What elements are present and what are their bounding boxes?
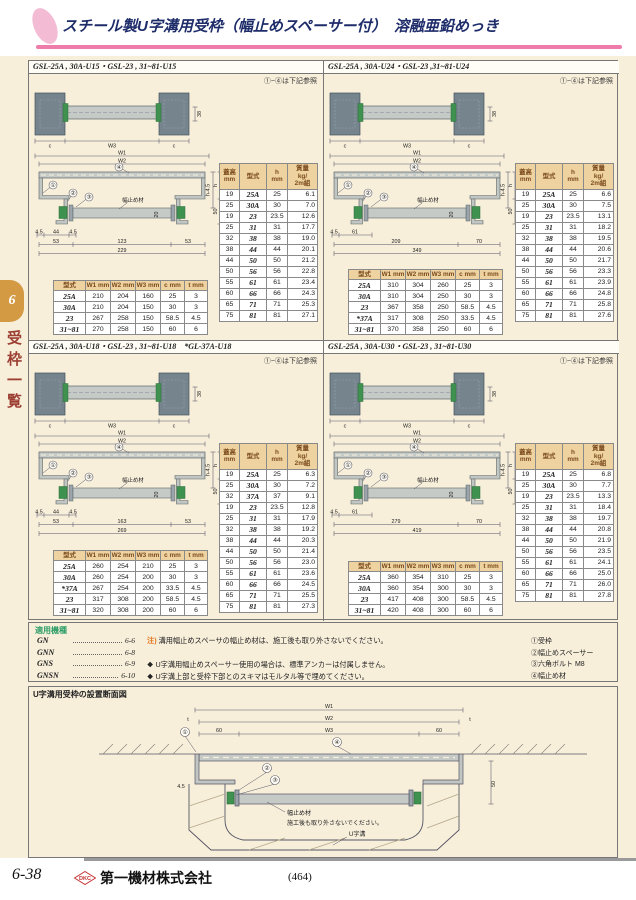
- svg-text:4.5: 4.5: [35, 510, 43, 516]
- table-cell: 56: [240, 266, 267, 277]
- height-weight-table: 蓋高mm型式hmm質量kg/2m組1925A256.12530A307.0192…: [219, 163, 318, 322]
- table-row: 38444420.3: [220, 535, 318, 546]
- table-cell: 31: [267, 222, 288, 233]
- table-cell: 320: [86, 605, 111, 616]
- column-header: c mm: [456, 561, 480, 572]
- svg-text:h: h: [508, 464, 514, 467]
- note-line: 注) 溝用幅止めスペーサの幅止め材は、施工後も取り外さないでください。: [147, 636, 388, 646]
- table-cell: 81: [563, 310, 584, 321]
- svg-text:c: c: [344, 144, 347, 150]
- svg-text:c: c: [173, 424, 176, 430]
- table-cell: 360: [381, 583, 406, 594]
- table-cell: 31: [536, 222, 563, 233]
- dotted-leader: [73, 665, 122, 666]
- spec-panel-grid: GSL-25A , 30A-U15・GSL-23 , 31~81-U15 ①~④…: [28, 60, 618, 620]
- table-cell: 270: [86, 324, 111, 335]
- table-cell: 71: [563, 579, 584, 590]
- svg-text:②: ②: [365, 190, 370, 197]
- table-cell: 71: [240, 590, 267, 601]
- table-cell: 31: [267, 513, 288, 524]
- table-cell: 44: [220, 546, 240, 557]
- table-cell: 308: [406, 313, 431, 324]
- table-cell: 19.0: [288, 233, 318, 244]
- column-header: c mm: [456, 269, 480, 280]
- column-header: t mm: [480, 269, 503, 280]
- panel-title: GSL-25A , 30A-U30・GSL-23 , 31~81-U30: [324, 341, 619, 354]
- company-name: 第一機材株式会社: [100, 868, 212, 888]
- table-cell: 250: [431, 324, 456, 335]
- logo-text: DKC: [79, 876, 91, 882]
- table-cell: 3: [480, 572, 503, 583]
- list-item: GNSN 6-10: [37, 671, 135, 683]
- table-cell: 310: [381, 280, 406, 291]
- table-cell: 3: [480, 583, 503, 594]
- table-cell: 260: [86, 572, 111, 583]
- dotted-leader: [73, 642, 122, 643]
- table-cell: 30A: [536, 200, 563, 211]
- svg-text:349: 349: [413, 248, 422, 254]
- table-cell: 50: [240, 546, 267, 557]
- table-cell: 20.6: [584, 244, 614, 255]
- title-underline: [36, 45, 622, 49]
- table-cell: 71: [536, 299, 563, 310]
- spacer-end-left: [235, 790, 239, 806]
- svg-text:h-4.5: h-4.5: [501, 184, 507, 196]
- column-header: 型式: [536, 444, 563, 470]
- table-cell: 250: [431, 302, 456, 313]
- panel-title: GSL-25A , 30A-U18・GSL-23 , 31~81-U18 *GL…: [29, 341, 323, 354]
- svg-text:163: 163: [118, 519, 127, 525]
- svg-text:53: 53: [185, 239, 191, 245]
- column-header: W3 mm: [431, 561, 456, 572]
- table-cell: 24.8: [584, 288, 614, 299]
- column-header: hmm: [563, 164, 584, 190]
- table-cell: 25: [456, 280, 480, 291]
- installation-section-box: U字溝用受枠の設置断面図 W1 W2 t t 60 W3 60 50 4.5 2…: [28, 686, 618, 858]
- svg-text:50: 50: [508, 209, 514, 215]
- svg-text:②: ②: [70, 190, 75, 197]
- table-row: 3237A379.1: [220, 491, 318, 502]
- table-cell: 260: [86, 561, 111, 572]
- table-cell: 19: [220, 502, 240, 513]
- header-row: 蓋高mm型式hmm質量kg/2m組: [220, 444, 318, 470]
- table-cell: 61: [267, 568, 288, 579]
- table-row: 60666624.8: [516, 288, 614, 299]
- dimension-table: 型式W1 mmW2 mmW3 mmc mmt mm25A260254210253…: [53, 550, 208, 617]
- svg-text:④: ④: [411, 444, 416, 451]
- table-row: 65717125.8: [516, 299, 614, 310]
- height-weight-table: 蓋高mm型式hmm質量kg/2m組1925A256.62530A307.5192…: [515, 163, 614, 322]
- dim-60-left: 60: [216, 728, 222, 734]
- table-row: 44505021.2: [220, 255, 318, 266]
- applicable-models-list: GN 6-6 GNN 6-8 GNS 6-9 GNSN 6-10: [37, 636, 135, 682]
- svg-text:W1: W1: [413, 151, 421, 157]
- table-cell: 75: [516, 310, 536, 321]
- header-row: 蓋高mm型式hmm質量kg/2m組: [220, 164, 318, 190]
- table-cell: 210: [86, 302, 111, 313]
- table-cell: 9.1: [288, 491, 318, 502]
- table-cell: 65: [220, 299, 240, 310]
- svg-text:123: 123: [118, 239, 127, 245]
- table-cell: 81: [240, 310, 267, 321]
- table-row: 31~81270258150606: [54, 324, 208, 335]
- table-cell: 7.7: [584, 480, 614, 491]
- svg-text:53: 53: [53, 239, 59, 245]
- column-header: W3 mm: [431, 269, 456, 280]
- table-cell: 25A: [536, 189, 563, 200]
- table-cell: 370: [381, 324, 406, 335]
- table-cell: 50: [563, 535, 584, 546]
- table-cell: 31: [536, 502, 563, 513]
- table-cell: 19: [220, 469, 240, 480]
- installation-cross-section-drawing: W1 W2 t t 60 W3 60 50 4.5 20: [39, 702, 609, 856]
- table-cell: 38: [516, 524, 536, 535]
- table-cell: 50: [536, 255, 563, 266]
- table-cell: 23.0: [288, 557, 318, 568]
- spec-panel-u30: GSL-25A , 30A-U30・GSL-23 , 31~81-U30 ①~④…: [324, 341, 619, 621]
- callout-frame: ①: [182, 729, 187, 736]
- table-cell: 20.8: [584, 524, 614, 535]
- svg-text:h-4.5: h-4.5: [206, 184, 212, 196]
- table-row: 30A260254200303: [54, 572, 208, 583]
- table-cell: 25.5: [288, 590, 318, 601]
- table-cell: 3: [185, 291, 208, 302]
- column-header: 蓋高mm: [516, 164, 536, 190]
- list-item: GNN 6-8: [37, 648, 135, 660]
- table-cell: 7.0: [288, 200, 318, 211]
- svg-text:③: ③: [381, 474, 386, 481]
- reference-note: ①~④は下記参照: [264, 76, 317, 86]
- svg-text:209: 209: [392, 239, 401, 245]
- table-row: 2336735825058.54.5: [349, 302, 503, 313]
- svg-text:W1: W1: [413, 431, 421, 437]
- table-cell: 23.4: [288, 277, 318, 288]
- table-cell: 12.8: [288, 502, 318, 513]
- table-row: 65717125.3: [220, 299, 318, 310]
- table-row: 55616123.9: [516, 277, 614, 288]
- table-cell: 71: [240, 299, 267, 310]
- table-cell: 61: [536, 557, 563, 568]
- svg-text:幅止め材: 幅止め材: [122, 196, 144, 204]
- table-cell: 23.5: [267, 502, 288, 513]
- table-cell: 25: [563, 469, 584, 480]
- svg-text:h-4.5: h-4.5: [501, 464, 507, 476]
- table-cell: 23.9: [584, 277, 614, 288]
- table-cell: 367: [381, 302, 406, 313]
- table-cell: 30: [161, 572, 185, 583]
- dimension-table: 型式W1 mmW2 mmW3 mmc mmt mm25A210204160253…: [53, 280, 208, 336]
- table-cell: 23: [349, 594, 381, 605]
- table-cell: 24.3: [288, 288, 318, 299]
- table-cell: 408: [406, 594, 431, 605]
- table-cell: 44: [516, 535, 536, 546]
- dim-4-5: 4.5: [177, 784, 185, 790]
- table-cell: 38: [220, 535, 240, 546]
- table-cell: 81: [536, 310, 563, 321]
- note-line: ❖ U字溝上部と受枠下部とのスキマはモルタル等で埋めてください。: [147, 672, 369, 682]
- note-mark: ❖: [147, 660, 153, 669]
- spec-panel-u15: GSL-25A , 30A-U15・GSL-23 , 31~81-U15 ①~④…: [29, 61, 324, 341]
- table-cell: 75: [220, 601, 240, 612]
- svg-text:W3: W3: [108, 144, 116, 150]
- table-cell: 60: [456, 324, 480, 335]
- table-cell: 44: [563, 524, 584, 535]
- table-cell: 75: [516, 590, 536, 601]
- column-header: c mm: [161, 550, 185, 561]
- table-cell: 61: [563, 277, 584, 288]
- table-cell: 23.5: [563, 491, 584, 502]
- bolt-right: [414, 792, 421, 804]
- table-cell: 254: [111, 561, 136, 572]
- table-cell: 20.1: [288, 244, 318, 255]
- table-cell: 33.5: [456, 313, 480, 324]
- svg-text:幅止め材: 幅止め材: [417, 196, 439, 204]
- svg-text:③: ③: [86, 194, 91, 201]
- applicable-models-title: 適用機種: [35, 625, 67, 636]
- table-row: 65717125.5: [220, 590, 318, 601]
- svg-text:c: c: [468, 144, 471, 150]
- svg-text:70: 70: [476, 239, 482, 245]
- spec-panel-u24: GSL-25A , 30A-U24・GSL-23 ,31~81-U24 ①~④は…: [324, 61, 619, 341]
- table-row: 2530A307.0: [220, 200, 318, 211]
- table-cell: 200: [136, 594, 161, 605]
- dotted-leader: [73, 654, 122, 655]
- table-cell: 25A: [240, 469, 267, 480]
- column-header: W3 mm: [136, 280, 161, 291]
- svg-text:38: 38: [197, 391, 203, 397]
- u-channel-inner: [225, 784, 423, 840]
- technical-drawing: cW3c 38 W1 W2 h-4.5 h 50 ① ② ③ ④ 幅止め材 20: [31, 87, 231, 263]
- table-cell: 420: [381, 605, 406, 616]
- note-mark: 注): [147, 636, 157, 645]
- table-cell: 358: [406, 324, 431, 335]
- header-row: 蓋高mm型式hmm質量kg/2m組: [516, 444, 614, 470]
- svg-text:4.5: 4.5: [35, 230, 43, 236]
- table-cell: 38: [536, 513, 563, 524]
- legend-item: ①受枠: [531, 636, 593, 648]
- table-cell: 30: [563, 200, 584, 211]
- table-cell: 58.5: [161, 594, 185, 605]
- table-cell: 23.3: [584, 266, 614, 277]
- svg-text:20: 20: [154, 492, 160, 498]
- table-cell: 60: [456, 605, 480, 616]
- table-row: 32383819.2: [220, 524, 318, 535]
- table-row: 25313118.2: [516, 222, 614, 233]
- table-cell: *37A: [349, 313, 381, 324]
- table-row: 75818127.6: [516, 310, 614, 321]
- table-cell: 304: [406, 280, 431, 291]
- table-cell: 22.8: [288, 266, 318, 277]
- table-cell: 258: [111, 313, 136, 324]
- svg-text:W3: W3: [403, 424, 411, 430]
- table-row: 192323.513.3: [516, 491, 614, 502]
- table-cell: 61: [563, 557, 584, 568]
- table-cell: 71: [267, 299, 288, 310]
- table-cell: 32: [516, 233, 536, 244]
- table-cell: 32: [220, 233, 240, 244]
- table-cell: 25: [563, 189, 584, 200]
- table-cell: 25.8: [584, 299, 614, 310]
- table-cell: 4.5: [480, 313, 503, 324]
- table-cell: 4.5: [185, 594, 208, 605]
- reference-note: ①~④は下記参照: [560, 356, 613, 366]
- table-cell: 50: [267, 546, 288, 557]
- table-cell: 24.5: [288, 579, 318, 590]
- svg-text:38: 38: [197, 111, 203, 117]
- table-cell: 25: [220, 222, 240, 233]
- table-cell: 27.1: [288, 310, 318, 321]
- table-cell: 24.1: [584, 557, 614, 568]
- svg-text:c: c: [49, 144, 52, 150]
- column-header: hmm: [563, 444, 584, 470]
- table-cell: 25A: [54, 291, 86, 302]
- column-header: 型式: [54, 280, 86, 291]
- table-cell: 18.4: [584, 502, 614, 513]
- table-cell: 25: [161, 291, 185, 302]
- table-cell: 23: [536, 491, 563, 502]
- reference-note: ①~④は下記参照: [264, 356, 317, 366]
- table-cell: 66: [536, 568, 563, 579]
- footer-rule: [84, 858, 636, 861]
- table-cell: 81: [267, 601, 288, 612]
- table-cell: 56: [563, 266, 584, 277]
- header-row: 型式W1 mmW2 mmW3 mmc mmt mm: [349, 561, 503, 572]
- table-cell: 44: [267, 535, 288, 546]
- table-cell: 44: [563, 244, 584, 255]
- table-cell: 38: [267, 524, 288, 535]
- table-cell: 33.5: [161, 583, 185, 594]
- table-cell: 58.5: [456, 302, 480, 313]
- table-cell: 13.1: [584, 211, 614, 222]
- table-cell: 58.5: [456, 594, 480, 605]
- column-header: c mm: [161, 280, 185, 291]
- table-row: 192323.512.6: [220, 211, 318, 222]
- table-row: 25A260254210253: [54, 561, 208, 572]
- page-ref: 6-10: [121, 671, 135, 680]
- table-row: 55616124.1: [516, 557, 614, 568]
- table-row: 1925A256.6: [516, 189, 614, 200]
- dotted-leader: [73, 677, 118, 678]
- column-header: 型式: [349, 561, 381, 572]
- table-cell: 150: [136, 302, 161, 313]
- table-cell: 56: [563, 546, 584, 557]
- svg-text:②: ②: [70, 470, 75, 477]
- table-cell: 66: [240, 288, 267, 299]
- callout-plate: ④: [334, 739, 339, 746]
- model-name: GNN: [37, 648, 73, 657]
- table-cell: 44: [516, 255, 536, 266]
- table-cell: 19.7: [584, 513, 614, 524]
- column-header: hmm: [267, 164, 288, 190]
- table-cell: 204: [111, 291, 136, 302]
- svg-text:269: 269: [118, 528, 127, 534]
- column-header: 蓋高mm: [220, 164, 240, 190]
- table-row: 50565623.0: [220, 557, 318, 568]
- table-cell: 56: [536, 546, 563, 557]
- table-cell: 19.5: [584, 233, 614, 244]
- svg-text:44: 44: [53, 230, 59, 236]
- table-cell: 38: [563, 233, 584, 244]
- table-cell: 30A: [54, 572, 86, 583]
- table-row: 38444420.6: [516, 244, 614, 255]
- svg-text:c: c: [344, 424, 347, 430]
- table-row: 30A310304250303: [349, 291, 503, 302]
- spacer-end-right: [409, 790, 413, 806]
- table-cell: 3: [185, 302, 208, 313]
- column-header: 型式: [240, 444, 267, 470]
- height-weight-table: 蓋高mm型式hmm質量kg/2m組1925A256.32530A307.2323…: [219, 443, 318, 613]
- legend-item: ④幅止め材: [531, 671, 593, 683]
- table-cell: 50: [516, 546, 536, 557]
- svg-text:①: ①: [345, 182, 350, 189]
- table-cell: *37A: [54, 583, 86, 594]
- chapter-label: 受枠一覧: [3, 330, 24, 414]
- table-cell: 56: [240, 557, 267, 568]
- table-cell: 38: [536, 233, 563, 244]
- table-row: 2530A307.2: [220, 480, 318, 491]
- table-cell: 310: [381, 291, 406, 302]
- page-title: スチール製U字溝用受枠（幅止めスペーサー付） 溶融亜鉛めっき: [62, 15, 499, 36]
- svg-text:50: 50: [508, 489, 514, 495]
- table-cell: 17.7: [288, 222, 318, 233]
- table-cell: 19: [516, 491, 536, 502]
- table-cell: 31~81: [349, 324, 381, 335]
- table-row: 31~81370358250606: [349, 324, 503, 335]
- svg-text:229: 229: [118, 248, 127, 254]
- table-cell: 210: [86, 291, 111, 302]
- note-mark: ❖: [147, 672, 153, 681]
- table-cell: 38: [220, 244, 240, 255]
- svg-text:53: 53: [185, 519, 191, 525]
- svg-text:61: 61: [352, 230, 358, 236]
- dim-60-right: 60: [436, 728, 442, 734]
- svg-text:4.5: 4.5: [69, 230, 77, 236]
- table-cell: 71: [267, 590, 288, 601]
- table-cell: 25A: [349, 572, 381, 583]
- column-header: W2 mm: [111, 280, 136, 291]
- table-cell: 50: [220, 557, 240, 568]
- table-row: 60666625.0: [516, 568, 614, 579]
- column-header: t mm: [480, 561, 503, 572]
- table-cell: 30: [456, 583, 480, 594]
- column-header: W1 mm: [381, 561, 406, 572]
- table-cell: 66: [240, 579, 267, 590]
- dimension-table: 型式W1 mmW2 mmW3 mmc mmt mm25A310304260253…: [348, 269, 503, 336]
- table-cell: 30A: [240, 200, 267, 211]
- table-cell: 55: [220, 568, 240, 579]
- chapter-tab: 6: [0, 280, 24, 322]
- table-cell: 50: [220, 266, 240, 277]
- table-row: 2326725815058.54.5: [54, 313, 208, 324]
- table-cell: 27.6: [584, 310, 614, 321]
- table-cell: 50: [536, 535, 563, 546]
- table-cell: 19: [220, 189, 240, 200]
- table-cell: 19.2: [288, 524, 318, 535]
- svg-text:38: 38: [492, 111, 498, 117]
- table-cell: 6.1: [288, 189, 318, 200]
- table-cell: 61: [267, 277, 288, 288]
- svg-text:4.5: 4.5: [69, 510, 77, 516]
- table-cell: 258: [111, 324, 136, 335]
- note-text: 溝用幅止めスペーサの幅止め材は、施工後も取り外さないでください。: [159, 636, 388, 645]
- svg-text:4.5: 4.5: [330, 230, 338, 236]
- table-cell: 31: [563, 222, 584, 233]
- table-row: 44505021.4: [220, 546, 318, 557]
- table-cell: 23.6: [288, 568, 318, 579]
- table-cell: 32: [516, 513, 536, 524]
- table-cell: 30: [563, 480, 584, 491]
- model-name: GNSN: [37, 671, 73, 680]
